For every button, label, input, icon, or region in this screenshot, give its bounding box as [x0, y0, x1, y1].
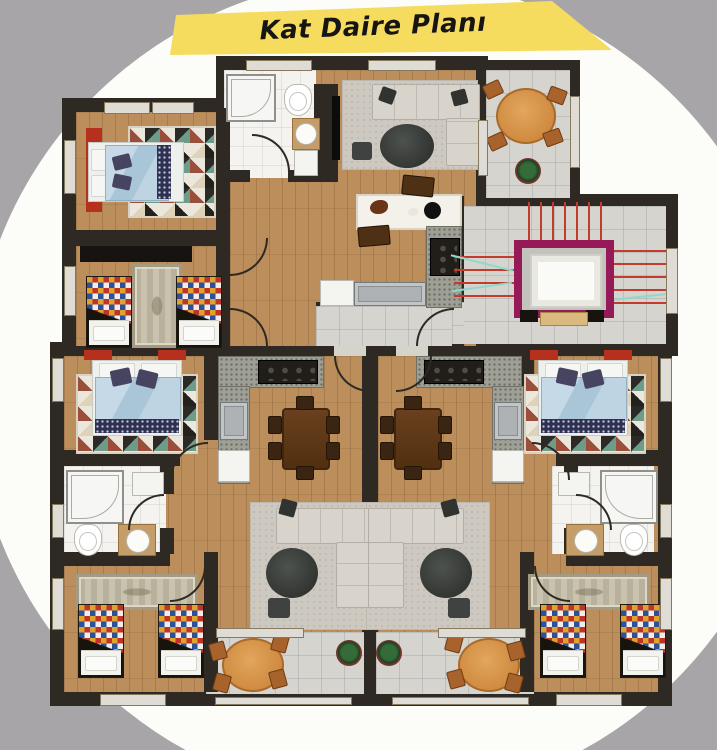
coffee-table [420, 548, 472, 598]
stair-rail-line [600, 202, 602, 242]
red-nightstand [530, 350, 558, 360]
elevator-door-post [586, 310, 604, 322]
window [52, 358, 64, 402]
window [666, 248, 678, 314]
fridge [492, 450, 524, 482]
shower [66, 470, 124, 524]
kitchen-sink [354, 282, 426, 306]
window [660, 504, 672, 538]
dining-chair [404, 466, 422, 480]
double-bed-br [538, 360, 628, 436]
bed-runner [541, 419, 625, 433]
potted-plant [515, 158, 541, 184]
stair-rail-line [588, 202, 590, 242]
bed-pillow [85, 656, 117, 671]
red-nightstand [158, 350, 186, 360]
balcony-glass-door [438, 628, 526, 638]
shower-tray [231, 79, 271, 117]
cooktop [258, 360, 318, 384]
stair-rail-line [552, 202, 554, 242]
window [660, 358, 672, 402]
stair-rail-line [564, 202, 566, 242]
shower [226, 74, 276, 122]
bed-pillow [93, 326, 125, 341]
sink [295, 123, 317, 145]
wall-br-kids-corner [520, 552, 534, 566]
window [52, 504, 64, 538]
potted-plant [336, 640, 362, 666]
sofa-chaise [446, 118, 480, 166]
napkin [408, 208, 418, 216]
sink-vanity [292, 118, 320, 150]
wall-bl-bedroom [204, 356, 218, 440]
wall-master-kids-top [76, 230, 216, 246]
coffee-art [370, 200, 388, 214]
fridge [218, 450, 250, 482]
window [246, 60, 312, 71]
washer [294, 150, 318, 176]
red-nightstand [84, 350, 112, 360]
plate [424, 202, 441, 219]
wall-bath-top-a [222, 170, 250, 182]
bed-pillow [165, 656, 197, 671]
dining-ch air [296, 466, 314, 480]
kitchen-island [356, 194, 462, 230]
dining-chair [268, 442, 282, 460]
window [100, 694, 166, 706]
window [64, 140, 76, 194]
window [368, 60, 436, 71]
double-bed-top [88, 142, 184, 202]
entry-threshold-right [396, 346, 428, 356]
dining-table [282, 408, 330, 470]
dining-chair [326, 416, 340, 434]
stair-rail-line [614, 250, 666, 252]
toilet [620, 524, 648, 556]
bar-chair [401, 174, 435, 197]
toilet [284, 84, 312, 116]
window [556, 694, 622, 706]
dining-chair [380, 442, 394, 460]
potted-plant [376, 640, 402, 666]
entry-threshold-left [334, 346, 366, 356]
kitchen-sink [494, 402, 522, 440]
kitchen-sink [220, 402, 248, 440]
shower-tray [605, 475, 653, 519]
window [104, 102, 150, 114]
dining-chair [438, 416, 452, 434]
stair-rail-line [528, 202, 530, 242]
bed-pillow [627, 656, 659, 671]
elevator-threshold [540, 312, 588, 326]
dining-chair [296, 396, 314, 410]
window [570, 96, 580, 168]
sink [126, 529, 150, 553]
stair-rail-line [614, 289, 666, 291]
coffee-table [266, 548, 318, 598]
window [52, 578, 64, 630]
pouf [268, 598, 290, 618]
wall-bl-bath-right-b [160, 528, 174, 554]
stair-rail-line [614, 302, 666, 304]
sink [574, 529, 598, 553]
cooktop [424, 360, 484, 384]
sofa-chaise [336, 542, 372, 608]
balcony-glass-door [478, 120, 488, 176]
red-nightstand [604, 350, 632, 360]
bar-chair [357, 225, 391, 248]
wardrobe-kids-top [80, 246, 192, 262]
shower-tray [71, 475, 119, 519]
sofa-chaise [368, 542, 404, 608]
balcony-rail [392, 697, 529, 705]
window [64, 266, 76, 316]
stair-rail-line [540, 202, 542, 242]
single-bed [86, 276, 132, 348]
dishwasher [320, 280, 354, 306]
balcony-rail [215, 697, 352, 705]
rug-kids-top [132, 264, 182, 348]
dining-chair [438, 442, 452, 460]
dining-chair [268, 416, 282, 434]
wall-bl-kids-corner [204, 552, 218, 566]
single-bed [540, 604, 586, 678]
single-bed [158, 604, 204, 678]
dining-chair [404, 396, 422, 410]
single-bed [78, 604, 124, 678]
dining-table [394, 408, 442, 470]
balcony-glass-door [216, 628, 304, 638]
pouf [448, 598, 470, 618]
window [660, 578, 672, 630]
window [152, 102, 194, 114]
bath-cabinet [132, 472, 164, 496]
pouf [352, 142, 372, 160]
floor-plan-poster: Kat Daire Planı [0, 0, 717, 750]
stair-rail-line [614, 263, 666, 265]
elevator-door-post [520, 310, 538, 322]
stair-rail-line [614, 276, 666, 278]
double-bed-bl [92, 360, 182, 436]
coffee-table [380, 124, 434, 168]
bed-pillow [183, 326, 215, 341]
elevator-cabin [530, 254, 602, 308]
bed-pillow [547, 656, 579, 671]
toilet [74, 524, 102, 556]
bed-runner [157, 145, 171, 199]
bed-runner [95, 419, 179, 433]
stair-rail-line [576, 202, 578, 242]
dining-chair [326, 442, 340, 460]
stair-rail-line [454, 295, 514, 297]
single-bed [176, 276, 222, 348]
dining-chair [380, 416, 394, 434]
tv-unit [332, 96, 340, 160]
